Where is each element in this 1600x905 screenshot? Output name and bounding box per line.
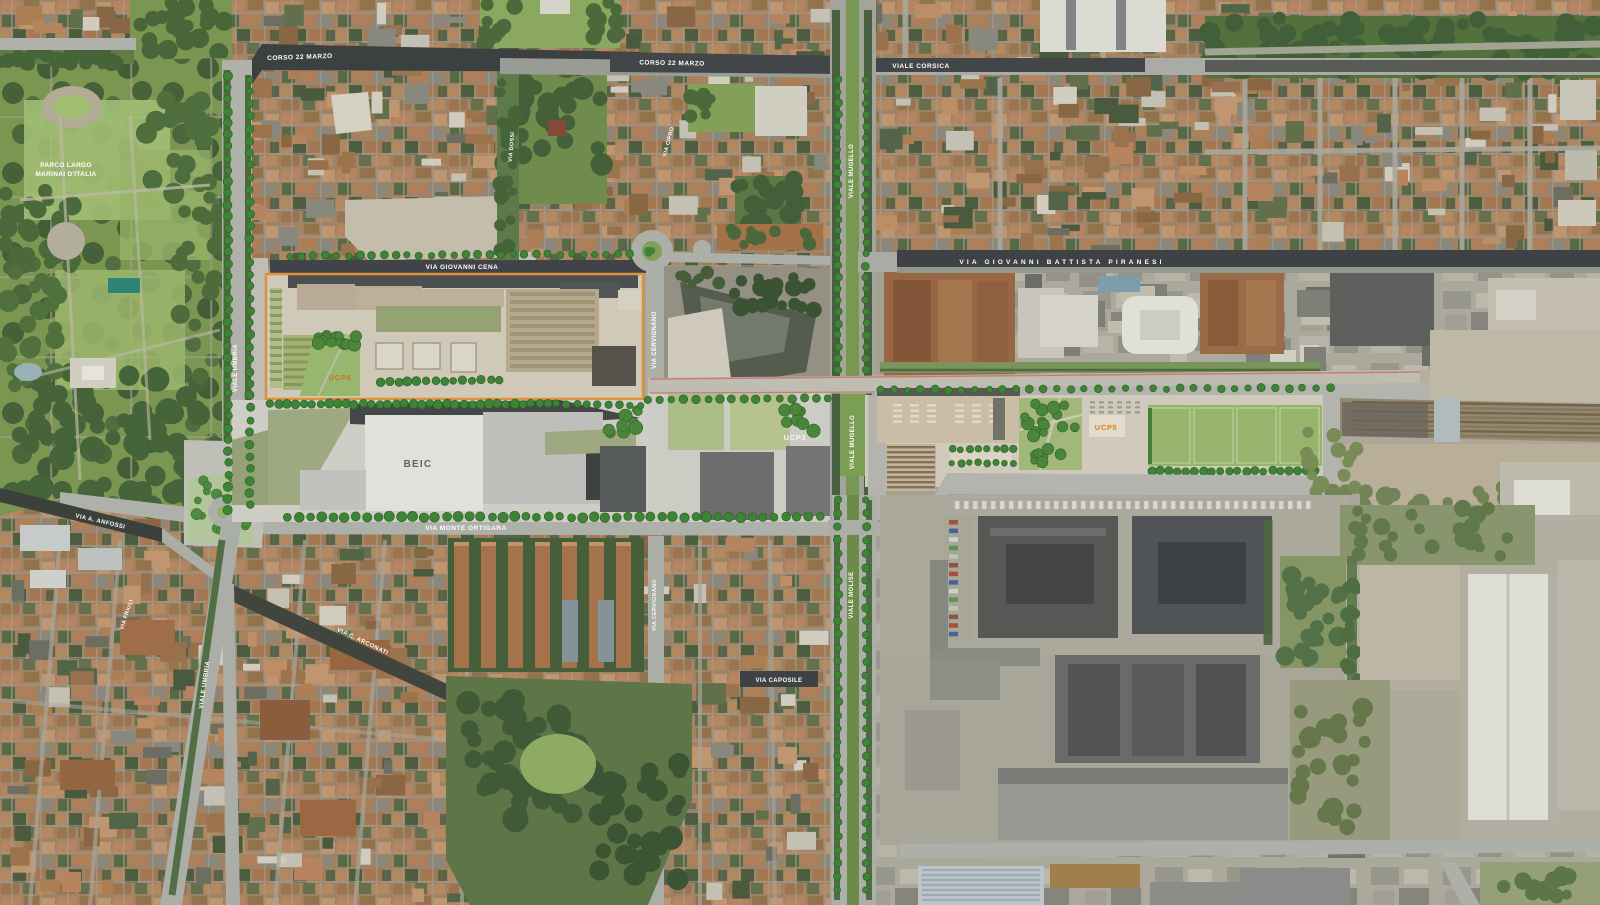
svg-text:VIALE MOLISE: VIALE MOLISE	[849, 571, 855, 618]
svg-text:VIALE UMBRIA: VIALE UMBRIA	[233, 344, 239, 392]
svg-text:VIA MONTE ORTIGARA: VIA MONTE ORTIGARA	[425, 525, 506, 532]
svg-text:VIA CERVIGNANO: VIA CERVIGNANO	[652, 311, 658, 369]
svg-text:VIALE MUGELLO: VIALE MUGELLO	[850, 415, 856, 470]
svg-text:MARINAI D'ITALIA: MARINAI D'ITALIA	[35, 171, 96, 178]
svg-text:VIA GIOVANNI CENA: VIA GIOVANNI CENA	[426, 264, 499, 271]
svg-text:CORSO 22 MARZO: CORSO 22 MARZO	[639, 59, 705, 67]
svg-text:VIALE CORSICA: VIALE CORSICA	[892, 63, 949, 70]
svg-text:VIA GIOVANNI BATTISTA PIRANESI: VIA GIOVANNI BATTISTA PIRANESI	[959, 259, 1164, 266]
svg-text:VIALE MUGELLO: VIALE MUGELLO	[849, 144, 855, 199]
svg-text:VIA CAPOSILE: VIA CAPOSILE	[756, 678, 803, 684]
svg-text:PARCO LARGO: PARCO LARGO	[40, 162, 92, 169]
